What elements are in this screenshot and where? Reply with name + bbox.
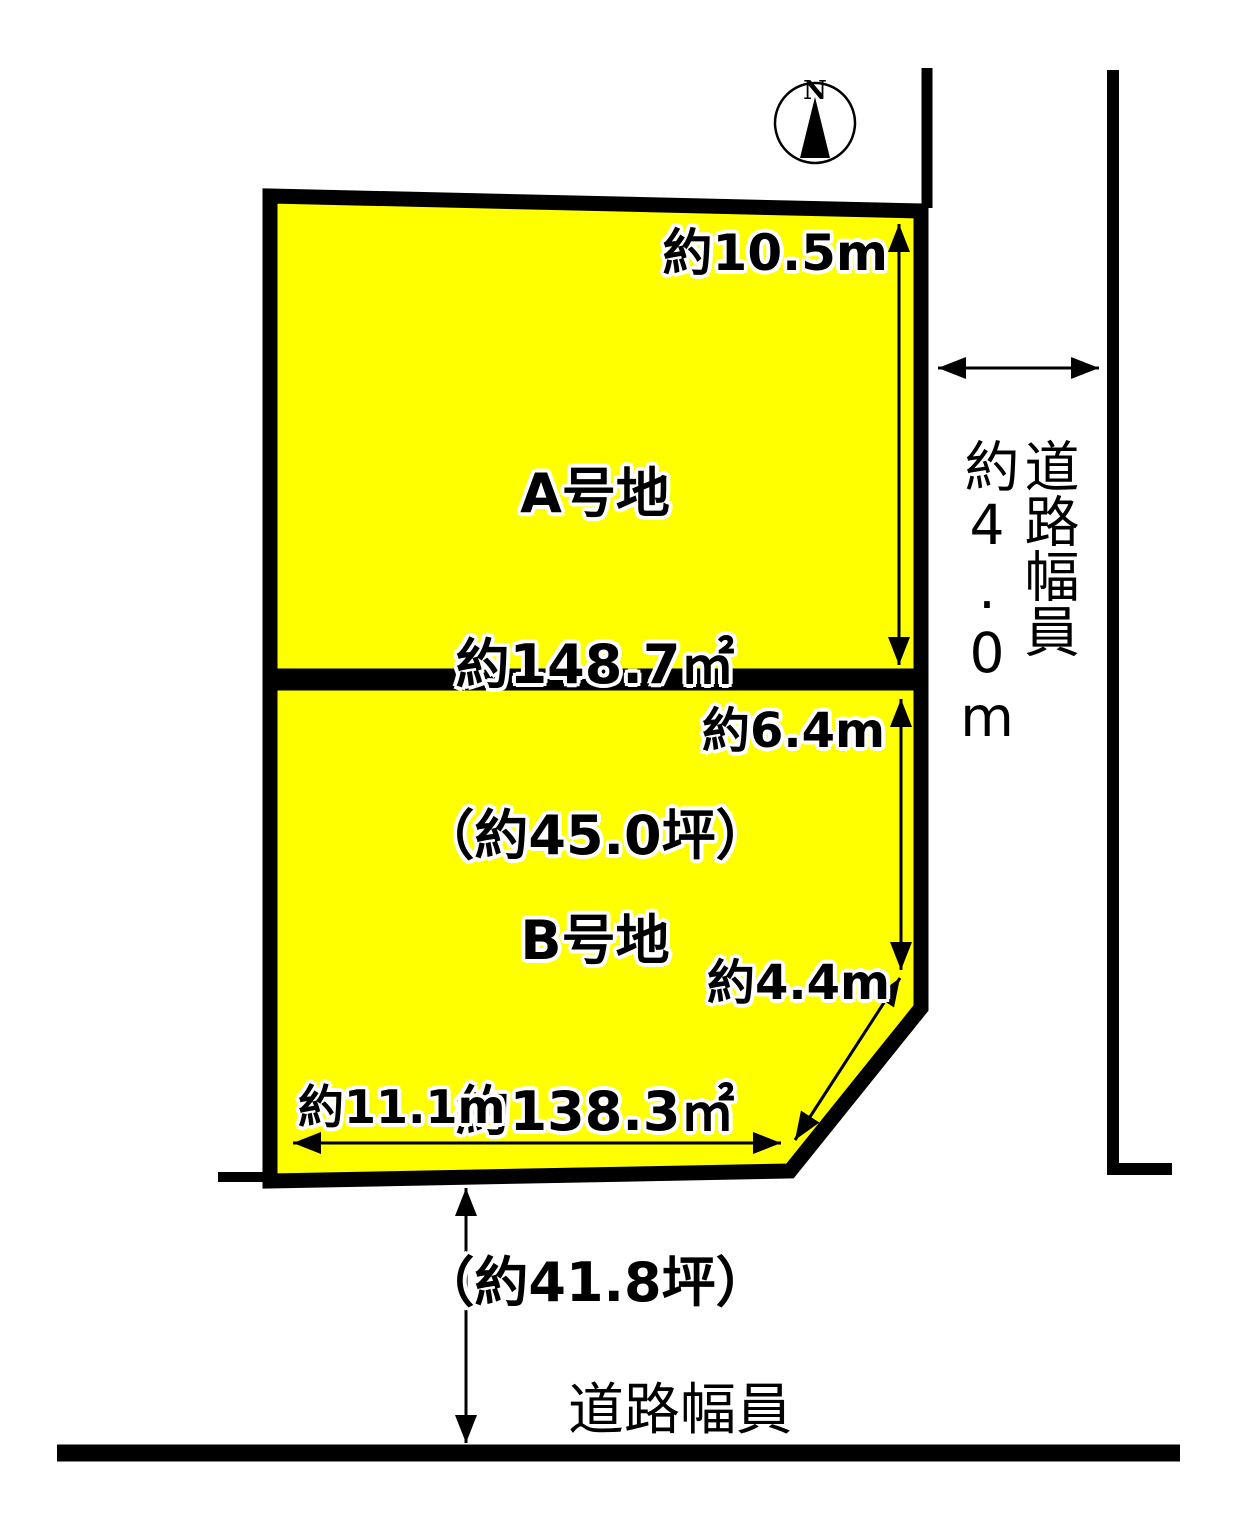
dim-label-lot-b-frontage: 約11.1m [298,1082,505,1132]
south-road-width-title: 道路幅員 [568,1379,792,1442]
dim-label-lot-b-corner: 約4.4m [707,958,890,1008]
east-road-width-value: 約4.0m [958,438,1016,718]
lot-diagram: N A号地 約148.7㎡ （約45.0坪） 約10.5m B号地 約138.3… [0,0,1238,1523]
east-road-width-title: 道路幅員 [1018,438,1076,718]
compass-north-label: N [800,76,830,106]
dim-label-lot-b-depth: 約6.4m [702,706,885,756]
dim-label-lot-a-depth: 約10.5m [663,228,888,278]
road-east-line [1113,70,1172,1169]
lot-a-name: A号地 [295,465,895,522]
lot-a-area: 約148.7㎡ [295,636,895,693]
south-road-label-block: 道路幅員 約5.2m [568,1253,792,1523]
